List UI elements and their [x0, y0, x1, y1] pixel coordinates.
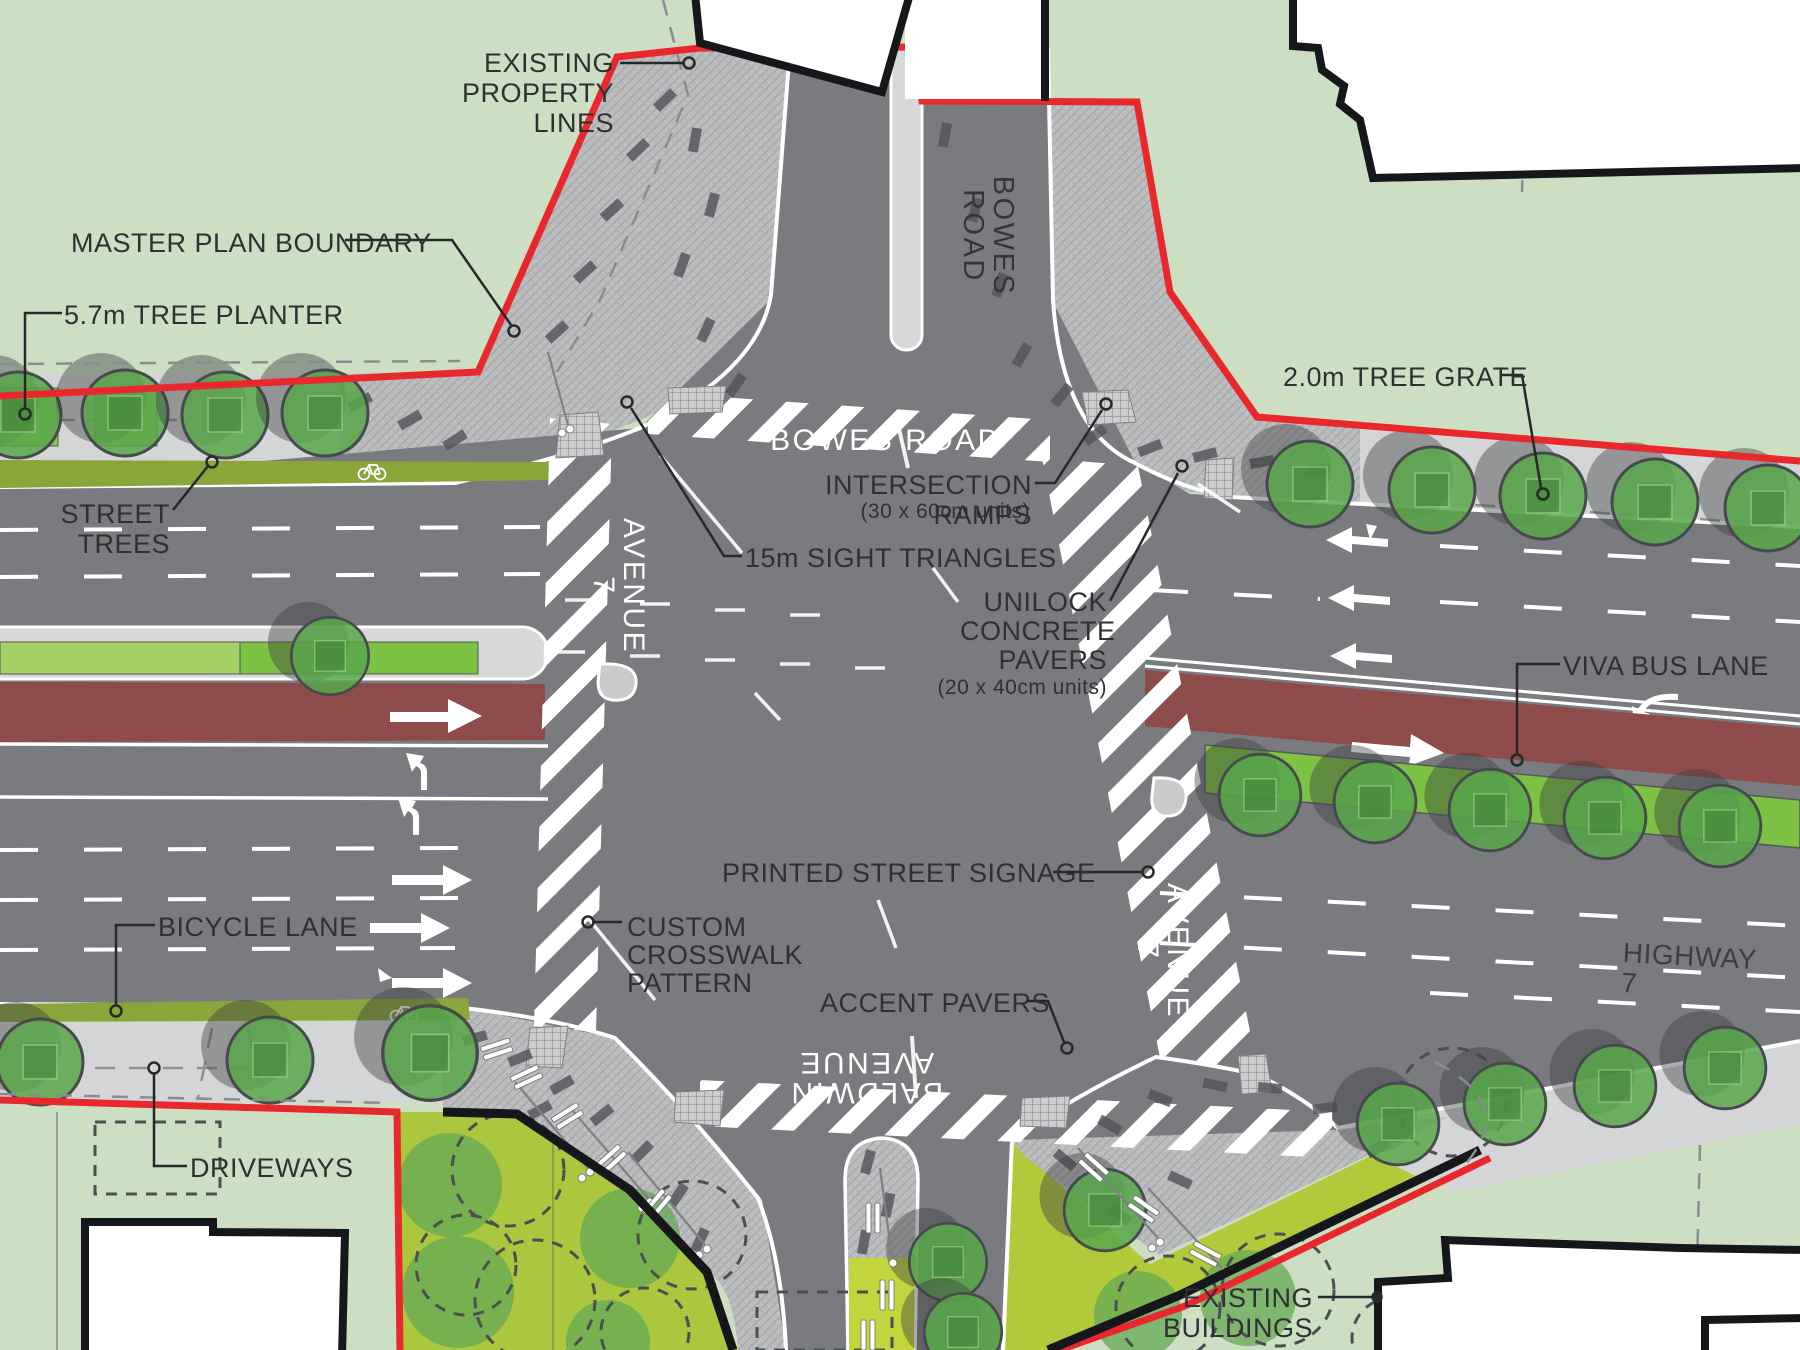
- label-driveways: DRIVEWAYS: [190, 1153, 354, 1183]
- label-unilock-pavers: UNILOCK CONCRETE PAVERS: [960, 588, 1107, 675]
- label-accent-pavers: ACCENT PAVERS: [820, 988, 1050, 1018]
- label-baldwin-avenue: BALDWIN AVENUE: [736, 1047, 996, 1107]
- label-bowes-road-intersection: BOWES ROAD: [766, 426, 1006, 456]
- label-custom-crosswalk: CUSTOM CROSSWALK PATTERN: [627, 913, 803, 997]
- label-street-trees: STREET TREES: [38, 499, 170, 559]
- label-intersection-ramps-sub: (30 x 60cm units): [745, 500, 1030, 523]
- label-existing-property-lines: EXISTING PROPERTY LINES: [438, 48, 614, 138]
- label-sight-triangles: 15m SIGHT TRIANGLES: [745, 543, 1057, 573]
- label-tree-grate: 2.0m TREE GRATE: [1283, 362, 1528, 392]
- label-existing-buildings: EXISTING BUILDINGS: [1150, 1283, 1313, 1343]
- label-printed-street-signage: PRINTED STREET SIGNAGE: [722, 858, 1096, 888]
- label-highway-7: HIGHWAY 7: [1621, 938, 1774, 1006]
- label-master-plan-boundary: MASTER PLAN BOUNDARY: [71, 228, 432, 258]
- label-viva-bus-lane: VIVA BUS LANE: [1563, 651, 1769, 681]
- site-plan-canvas: [0, 0, 1800, 1350]
- label-avenue7-west: AVENUE 7: [588, 506, 648, 666]
- site-plan: EXISTING PROPERTY LINES MASTER PLAN BOUN…: [0, 0, 1800, 1350]
- label-bowes-road-vertical: BOWES ROAD: [958, 126, 1018, 346]
- label-avenue7-east: AVENUE 7: [1132, 871, 1192, 1031]
- label-unilock-pavers-sub: (20 x 40cm units): [920, 676, 1107, 699]
- label-bicycle-lane: BICYCLE LANE: [158, 912, 358, 942]
- label-tree-planter: 5.7m TREE PLANTER: [64, 300, 344, 330]
